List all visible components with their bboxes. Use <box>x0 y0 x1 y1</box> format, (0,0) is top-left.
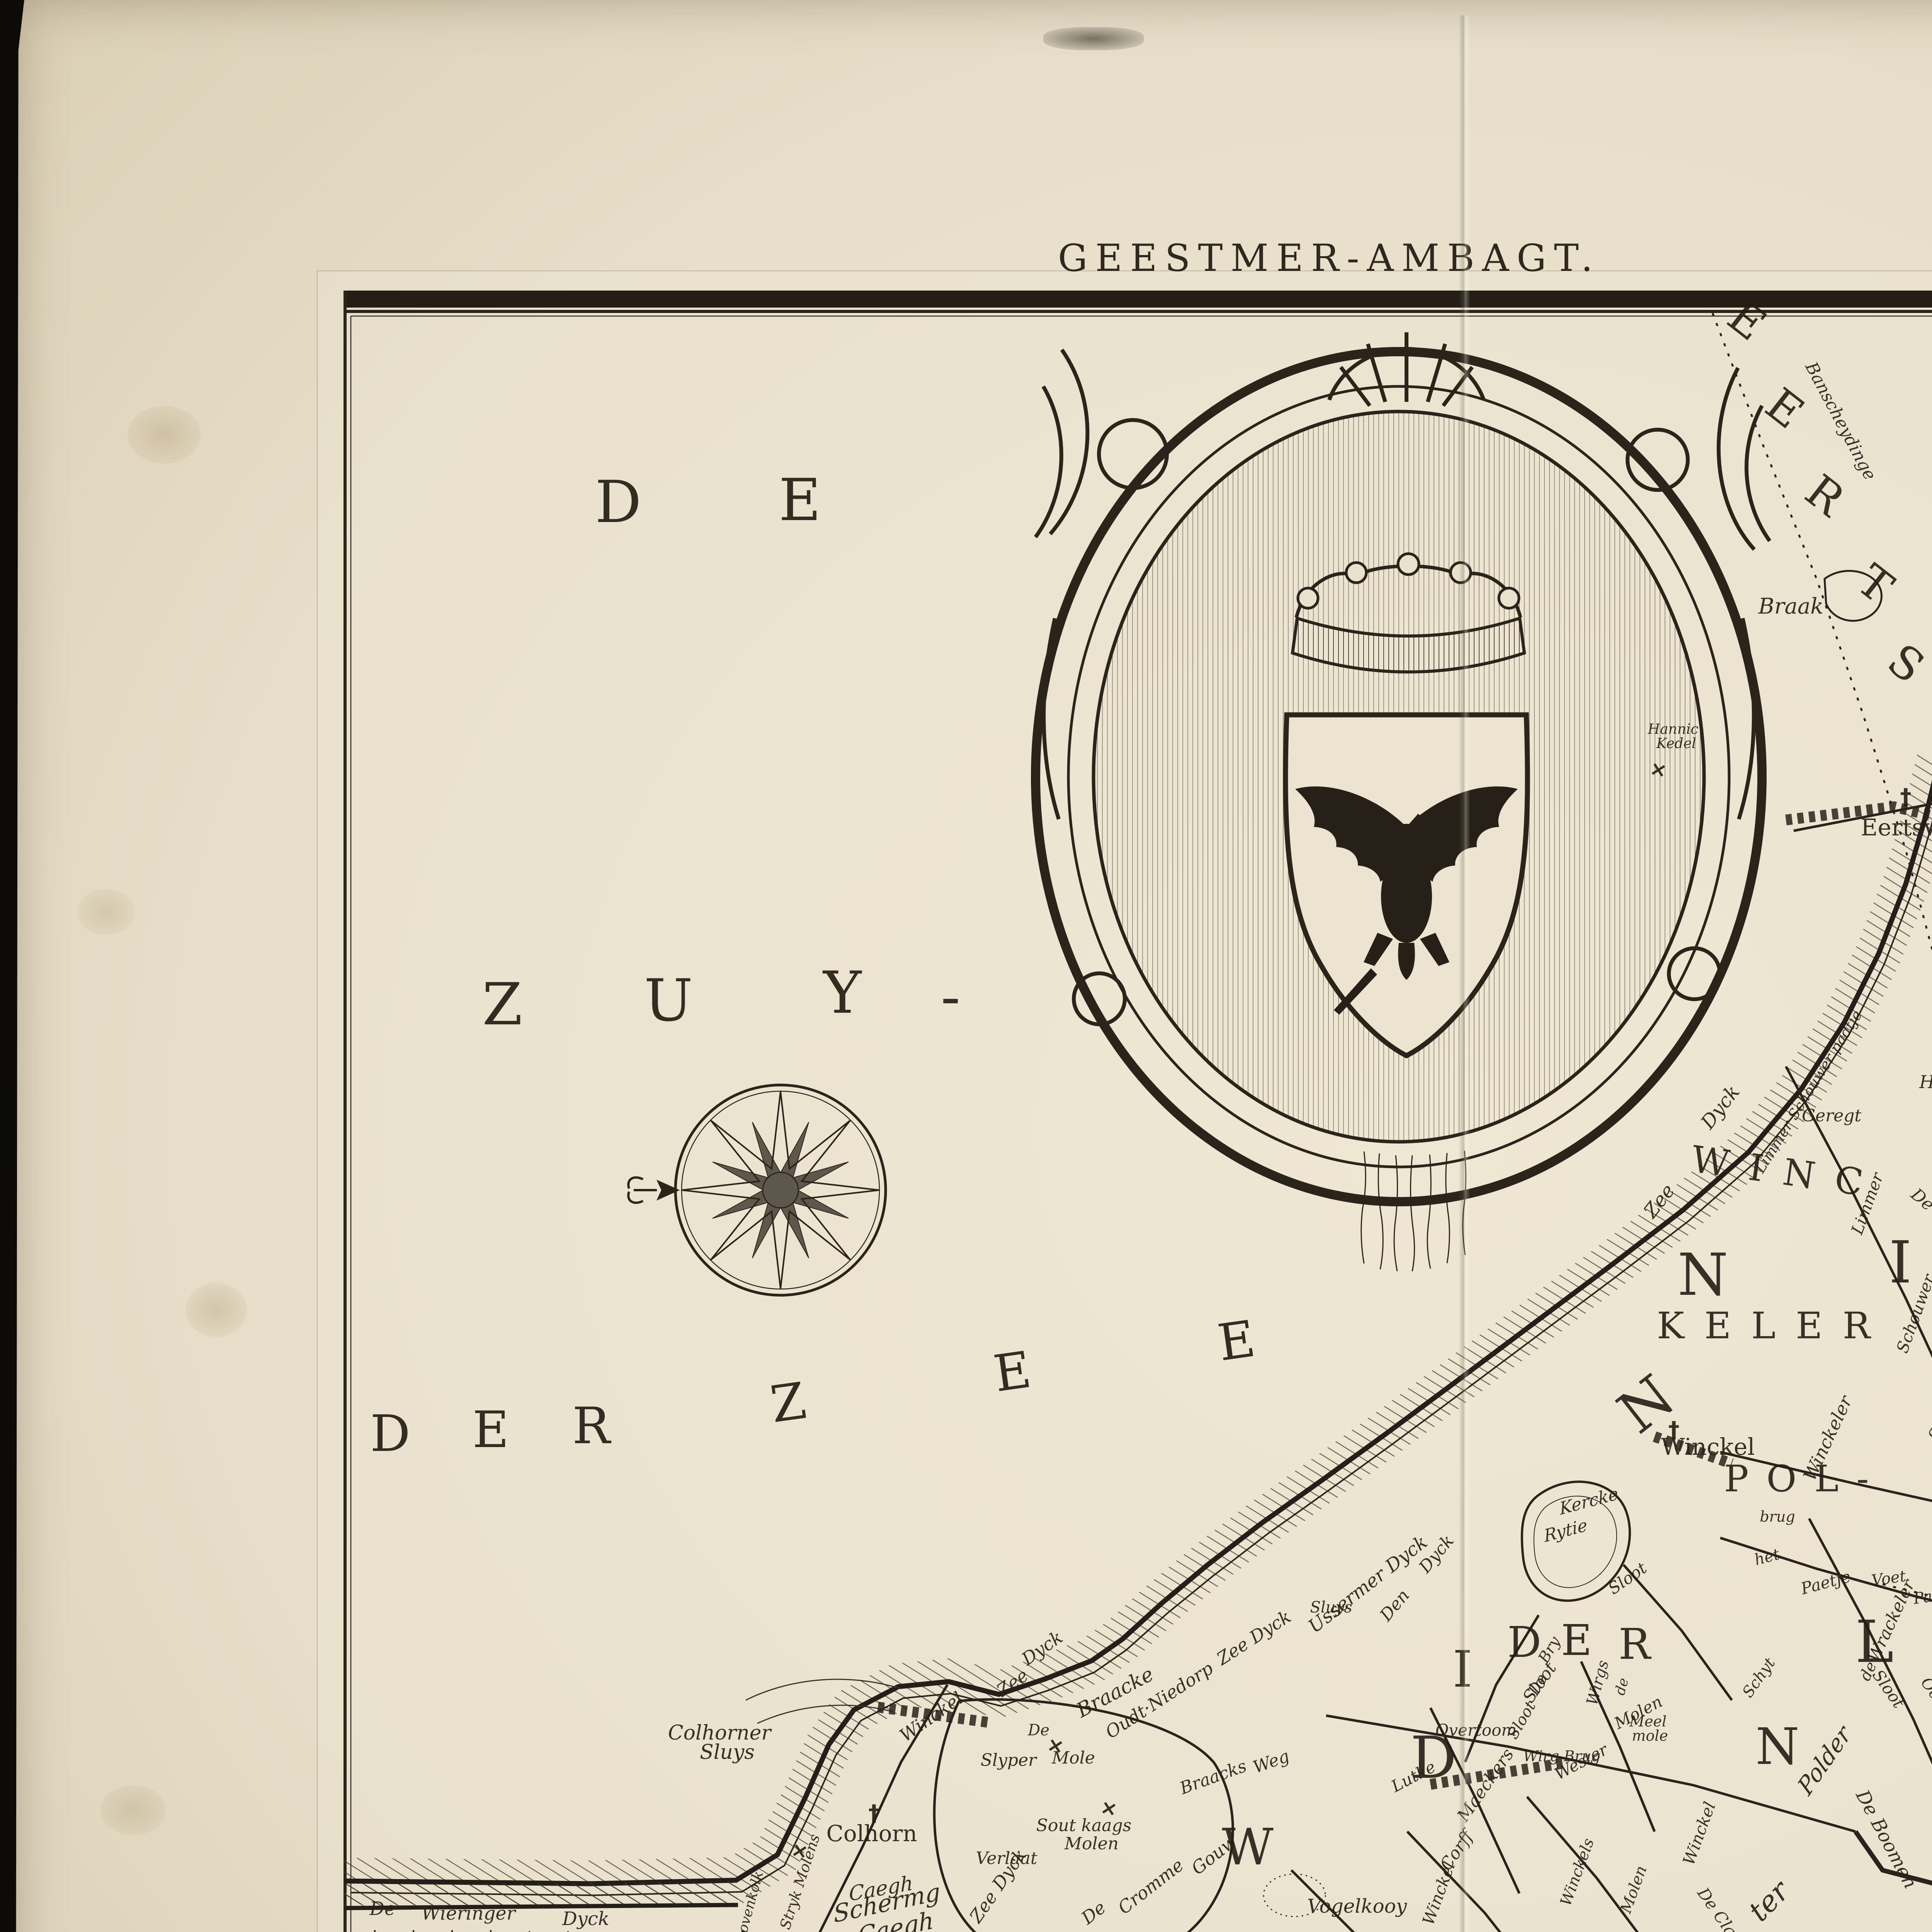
map-label: N <box>1677 1246 1728 1304</box>
map-label: Y <box>823 964 861 1022</box>
map-label: Z <box>767 1375 809 1430</box>
cartouche-waterfall <box>1361 1151 1466 1271</box>
compass-rose <box>628 1085 886 1295</box>
map-label: Colhorner <box>668 1723 771 1743</box>
map-label: Molen <box>1065 1835 1119 1852</box>
map-label: Geregt <box>1802 1107 1861 1124</box>
map-label: D <box>370 1408 410 1459</box>
cartouche-left <box>1036 332 1770 1271</box>
map-label: E <box>1215 1313 1258 1368</box>
map-label: KELER <box>1657 1308 1890 1345</box>
map-label: brug <box>1760 1509 1795 1524</box>
map-label: Sluys <box>1310 1600 1352 1615</box>
map-label: - <box>941 968 961 1026</box>
church-icon: † <box>1900 784 1912 810</box>
map-label: Z <box>482 976 522 1034</box>
map-label: E <box>473 1405 509 1455</box>
map-label: Braak <box>1759 596 1824 617</box>
map-label: Kedel <box>1656 737 1696 751</box>
map-label: Eertswoude <box>1861 816 1932 839</box>
map-label: E <box>1561 1619 1592 1662</box>
map-label: De <box>1028 1723 1049 1738</box>
parcel-grid <box>344 1930 1090 1932</box>
map-label: De <box>370 1900 396 1918</box>
map-label: D <box>595 473 641 531</box>
map-label: I <box>1889 1234 1912 1292</box>
church-icon: † <box>869 1800 880 1826</box>
map-label: U <box>644 972 693 1030</box>
map-label: Wieringer <box>421 1904 515 1923</box>
map-label: R <box>572 1401 610 1451</box>
map-label: Vogelkooy <box>1307 1896 1407 1916</box>
map-label: mole <box>1632 1728 1668 1743</box>
compass-west-pointer <box>628 1177 679 1202</box>
map-label: E <box>779 471 821 529</box>
map-label: Slyper <box>981 1752 1036 1769</box>
map-label: Het <box>1919 1073 1932 1091</box>
map-label: N <box>1755 1721 1799 1772</box>
map-label: Dyck <box>562 1910 609 1928</box>
church-icon: † <box>1668 1417 1680 1443</box>
map-label: I <box>1452 1644 1472 1694</box>
map-label: Sout kaags <box>1036 1817 1132 1834</box>
map-label: E <box>991 1344 1034 1399</box>
map-label: R <box>1619 1623 1651 1665</box>
map-screenshot: Є Э Є Э GEESTMER-AMBAGT. SCHAGER-CO DEZU… <box>0 0 1932 1932</box>
map-label: Hannic <box>1648 723 1699 736</box>
map-label: Overtoom <box>1435 1722 1517 1738</box>
map-title-left: GEESTMER-AMBAGT. <box>1058 240 1600 277</box>
map-label: Sluys <box>700 1742 755 1762</box>
